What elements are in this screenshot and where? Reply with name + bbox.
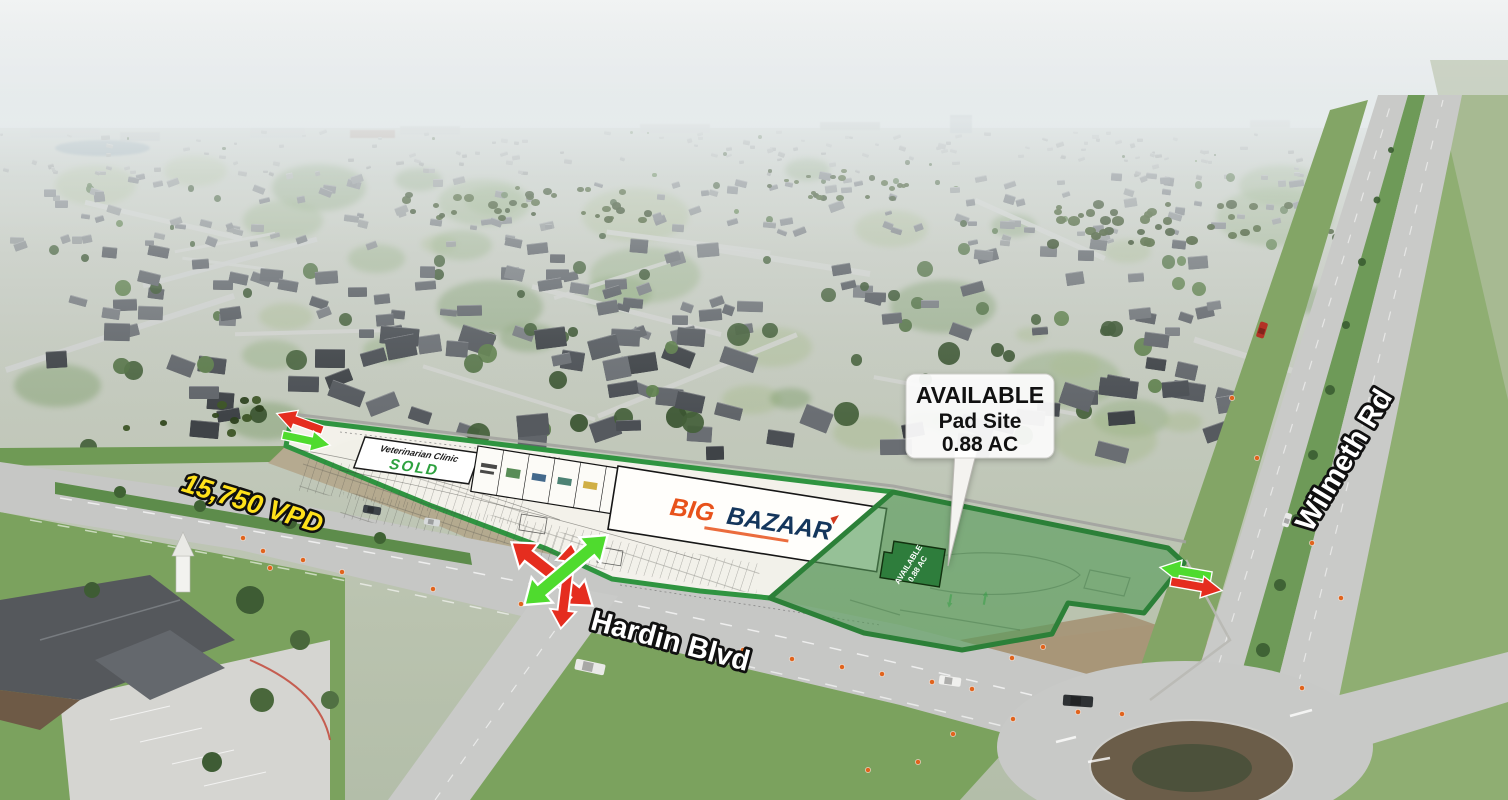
traffic-cone xyxy=(260,548,265,553)
traffic-cone xyxy=(1309,540,1314,545)
traffic-cone xyxy=(1229,395,1234,400)
traffic-cone xyxy=(915,759,920,764)
traffic-cone xyxy=(240,535,245,540)
traffic-cone xyxy=(300,557,305,562)
traffic-cone xyxy=(1299,685,1304,690)
traffic-cone xyxy=(969,686,974,691)
traffic-cone xyxy=(518,601,523,606)
callout-line1: AVAILABLE xyxy=(916,382,1044,408)
traffic-cone xyxy=(865,767,870,772)
traffic-cone xyxy=(1338,595,1343,600)
traffic-cone xyxy=(430,586,435,591)
traffic-cone xyxy=(1010,716,1015,721)
vehicle xyxy=(1063,694,1094,707)
traffic-cone xyxy=(1119,711,1124,716)
traffic-cone xyxy=(339,569,344,574)
traffic-cone xyxy=(950,731,955,736)
traffic-cone xyxy=(879,671,884,676)
aerial-marketing-image: Veterinarian Clinic SOLD BIG xyxy=(0,0,1508,800)
traffic-cone xyxy=(1009,655,1014,660)
traffic-cone xyxy=(839,664,844,669)
traffic-cone xyxy=(789,656,794,661)
scene-overlay: Veterinarian Clinic SOLD BIG xyxy=(0,0,1508,800)
callout-line3: 0.88 AC xyxy=(942,433,1018,456)
traffic-cone xyxy=(1254,455,1259,460)
traffic-cone xyxy=(1040,644,1045,649)
traffic-cone xyxy=(929,679,934,684)
traffic-cone xyxy=(267,565,272,570)
traffic-cone xyxy=(1075,709,1080,714)
callout-line2: Pad Site xyxy=(939,410,1022,433)
